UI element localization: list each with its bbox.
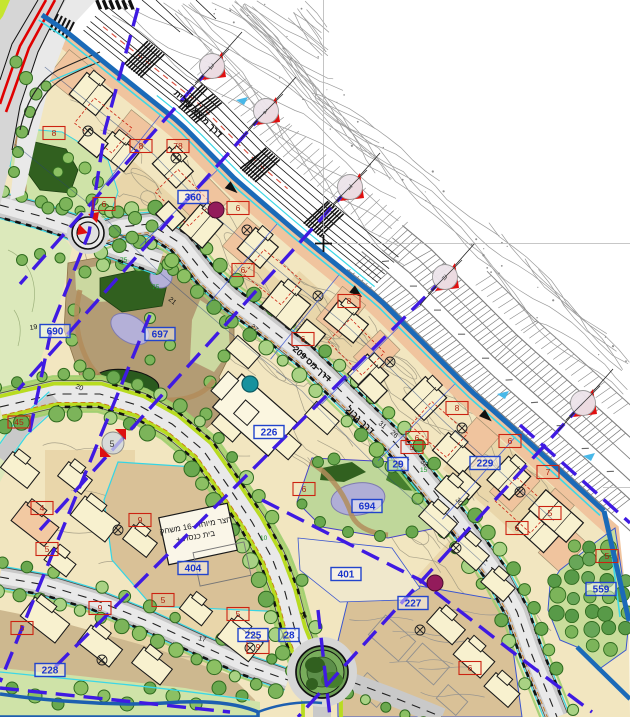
svg-text:5: 5 <box>236 609 241 619</box>
svg-text:9: 9 <box>256 642 261 652</box>
svg-text:7: 7 <box>546 467 551 477</box>
svg-text:6: 6 <box>468 663 473 673</box>
svg-text:6: 6 <box>236 203 241 213</box>
svg-text:9: 9 <box>98 603 103 613</box>
svg-text:6: 6 <box>301 334 306 344</box>
svg-text:690: 690 <box>47 327 64 338</box>
svg-text:8: 8 <box>347 296 352 306</box>
svg-text:697: 697 <box>152 330 169 341</box>
svg-text:6: 6 <box>415 433 420 443</box>
svg-text:29: 29 <box>392 460 404 471</box>
svg-text:5: 5 <box>605 551 610 561</box>
svg-text:694: 694 <box>359 502 376 513</box>
svg-text:10: 10 <box>260 535 268 542</box>
svg-text:75: 75 <box>152 284 160 291</box>
svg-text:228: 228 <box>42 666 59 677</box>
svg-text:8: 8 <box>52 128 57 138</box>
svg-text:9: 9 <box>138 515 143 525</box>
svg-text:4: 4 <box>40 503 45 513</box>
svg-text:5: 5 <box>410 442 415 452</box>
svg-text:19: 19 <box>29 324 38 332</box>
svg-text:8: 8 <box>139 141 144 151</box>
svg-text:5: 5 <box>161 595 166 605</box>
svg-text:6: 6 <box>508 436 513 446</box>
svg-text:8: 8 <box>455 403 460 413</box>
svg-text:5: 5 <box>109 439 114 449</box>
svg-text:227: 227 <box>405 599 422 610</box>
svg-text:5: 5 <box>548 508 553 518</box>
svg-text:401: 401 <box>338 570 355 581</box>
svg-text:5: 5 <box>20 623 25 633</box>
svg-text:404: 404 <box>185 564 202 575</box>
svg-text:75: 75 <box>120 257 128 264</box>
svg-text:5: 5 <box>45 544 50 554</box>
svg-text:229: 229 <box>477 459 494 470</box>
svg-text:45: 45 <box>14 417 24 427</box>
svg-text:6: 6 <box>302 484 307 494</box>
svg-text:6: 6 <box>241 265 246 275</box>
svg-text:226: 226 <box>261 428 278 439</box>
svg-text:78: 78 <box>173 141 183 151</box>
svg-text:225: 225 <box>245 631 262 642</box>
svg-text:6: 6 <box>515 523 520 533</box>
svg-text:559: 559 <box>593 585 610 596</box>
svg-text:28: 28 <box>283 631 295 642</box>
svg-text:360: 360 <box>185 193 202 204</box>
svg-text:15: 15 <box>420 467 428 474</box>
svg-text:6: 6 <box>102 199 107 209</box>
